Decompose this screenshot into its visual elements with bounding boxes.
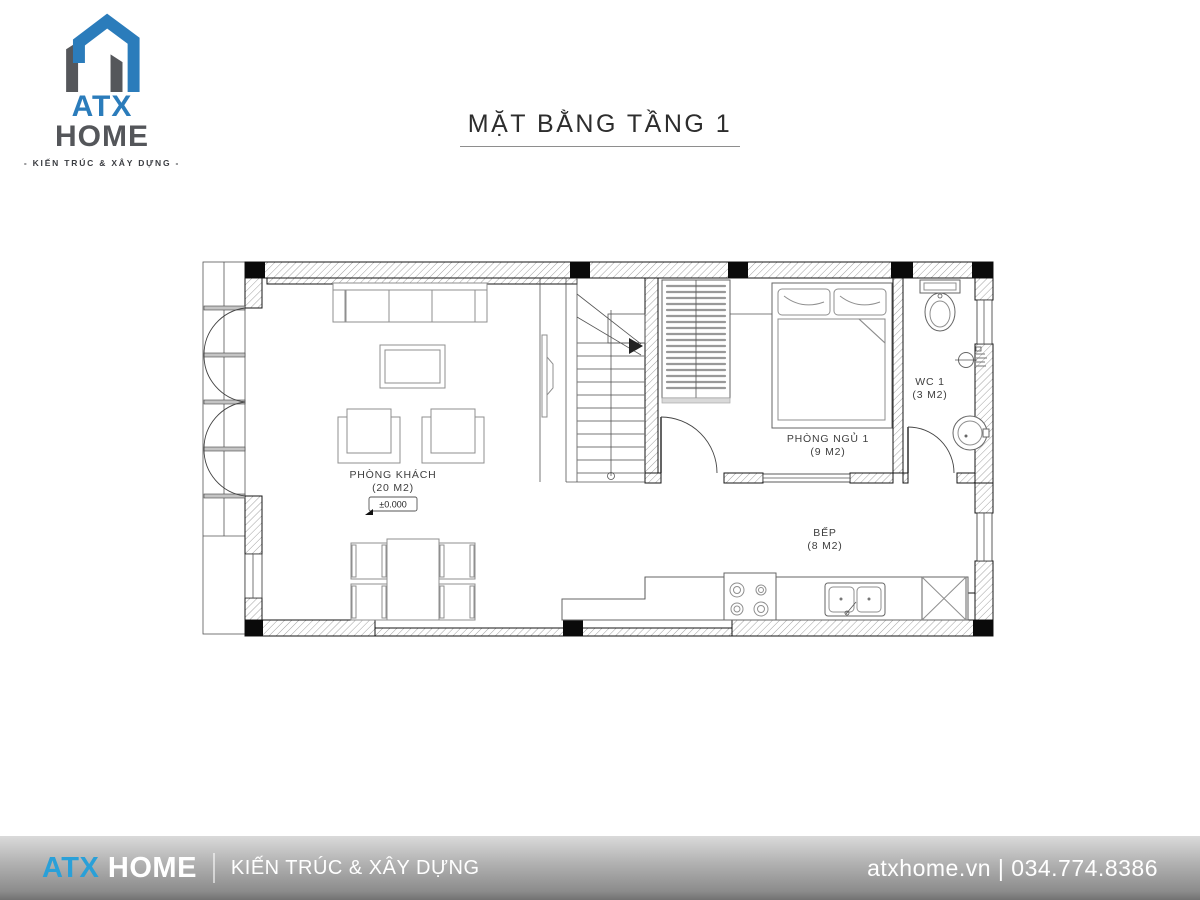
kitchen-sink xyxy=(825,583,885,616)
fridge-space xyxy=(922,577,966,620)
room-label-wc-area: (3 M2) xyxy=(912,389,947,401)
footer-brand-home: HOME xyxy=(108,852,197,884)
toilet xyxy=(920,280,960,331)
footer-tagline: KIẾN TRÚC & XÂY DỰNG xyxy=(231,857,480,880)
room-label-kitchen-area: (8 M2) xyxy=(807,540,842,552)
coffee-table xyxy=(380,345,445,388)
footer-brand-atx: ATX xyxy=(42,852,99,884)
brand-tagline: - KIẾN TRÚC & XÂY DỰNG - xyxy=(22,158,182,168)
page-title: MẶT BẰNG TẦNG 1 xyxy=(460,110,740,147)
floor-plan: PHÒNG KHÁCH (20 M2) ±0.000 PHÒNG NGỦ 1 (… xyxy=(200,252,1000,642)
double-bed xyxy=(730,283,892,428)
stove xyxy=(724,573,776,620)
footer-bar: ATX HOME KIẾN TRÚC & XÂY DỰNG atxhome.vn… xyxy=(0,836,1200,900)
footer-website: atxhome.vn xyxy=(867,855,991,881)
staircase xyxy=(566,278,645,482)
entrance-doors xyxy=(204,306,245,498)
room-label-living-area: (20 M2) xyxy=(372,482,414,494)
room-label-bedroom-area: (9 M2) xyxy=(810,446,845,458)
armchair xyxy=(422,409,484,463)
footer-separator: | xyxy=(998,855,1004,881)
footer-divider xyxy=(213,853,215,883)
level-marker-value: ±0.000 xyxy=(379,500,406,510)
room-label-living-name: PHÒNG KHÁCH xyxy=(350,468,437,481)
tv-unit xyxy=(540,278,553,482)
room-label-kitchen-name: BẾP xyxy=(813,526,836,539)
level-marker: ±0.000 xyxy=(365,497,417,515)
footer-contact: atxhome.vn | 034.774.8386 xyxy=(867,855,1158,882)
room-label-wc-name: WC 1 xyxy=(915,376,944,388)
room-label-bedroom-name: PHÒNG NGỦ 1 xyxy=(787,432,869,445)
sofa xyxy=(333,283,487,322)
armchair xyxy=(338,409,400,463)
footer-brand: ATX HOME xyxy=(42,852,197,885)
dining-table-set xyxy=(351,539,475,620)
title-wrap: MẶT BẰNG TẦNG 1 xyxy=(0,110,1200,147)
wc-door xyxy=(908,427,954,473)
wardrobe xyxy=(662,280,730,403)
footer-phone: 034.774.8386 xyxy=(1011,855,1158,881)
bedroom-door xyxy=(661,417,717,473)
logo-house-icon xyxy=(46,10,158,92)
